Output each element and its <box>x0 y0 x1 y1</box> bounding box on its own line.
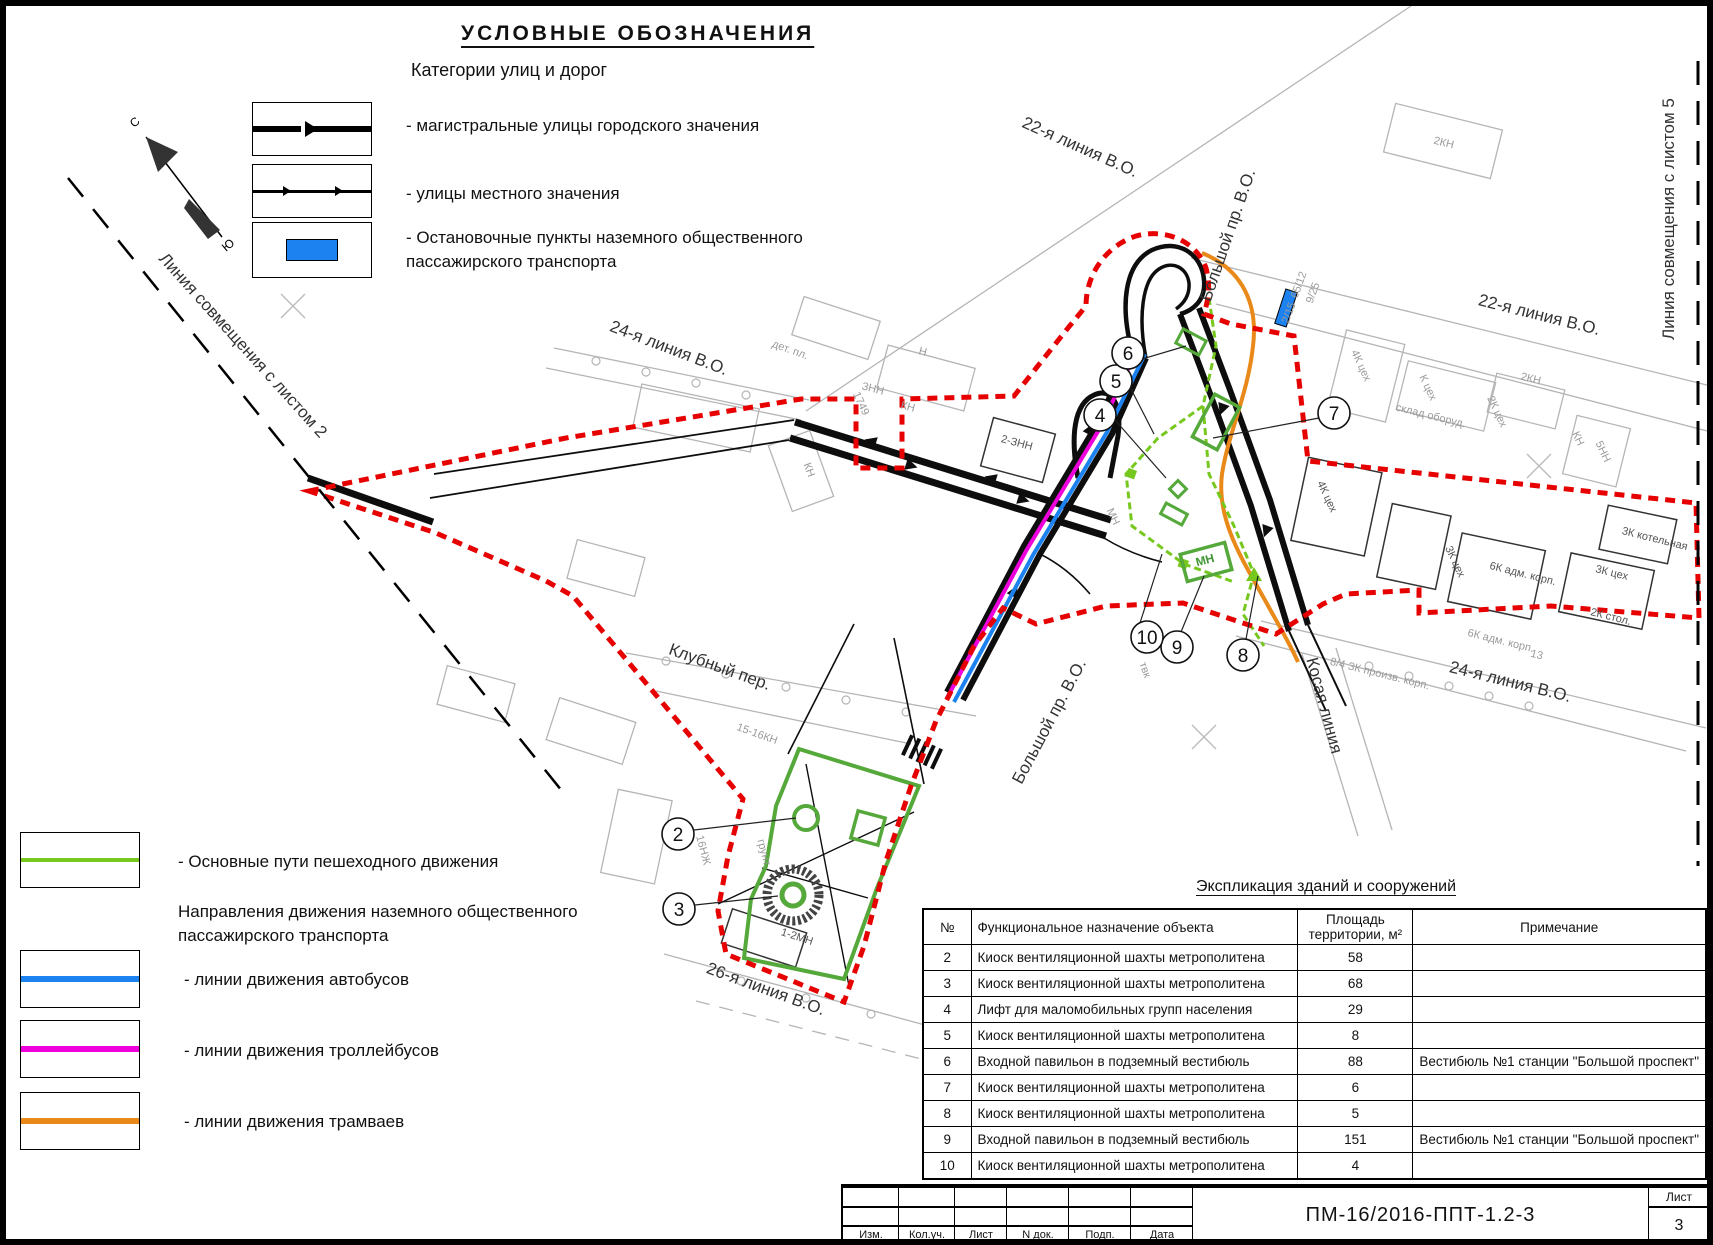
svg-text:4К цех: 4К цех <box>1314 479 1339 515</box>
table-row[interactable]: 2Киоск вентиляционной шахты метрополитен… <box>923 945 1706 971</box>
trolleybus-line-swatch <box>21 1046 139 1052</box>
col-purpose: Функциональное назначение объекта <box>971 909 1298 945</box>
cell-area: 8 <box>1298 1023 1413 1049</box>
legend-symbol-trolleybus <box>20 1020 140 1078</box>
map-marker[interactable]: 2 <box>662 818 694 850</box>
tb-label-data: Дата <box>1131 1229 1193 1241</box>
cell-purpose: Киоск вентиляционной шахты метрополитена <box>971 1075 1298 1101</box>
svg-text:КН: КН <box>1569 430 1586 448</box>
svg-text:6: 6 <box>1123 344 1134 365</box>
svg-text:МН: МН <box>1104 506 1122 527</box>
cell-note: Вестибюль №1 станции "Большой проспект" <box>1413 1049 1706 1075</box>
cell-note <box>1413 1153 1706 1180</box>
cell-note <box>1413 1075 1706 1101</box>
cell-num: 5 <box>923 1023 971 1049</box>
svg-text:Н: Н <box>917 345 928 359</box>
col-area-line2: территории, м² <box>1309 927 1403 942</box>
svg-text:10: 10 <box>1136 628 1157 649</box>
legend-item-arterial: - магистральные улицы городского значени… <box>406 114 876 138</box>
svg-text:5: 5 <box>1111 372 1122 393</box>
road-casing <box>308 246 1346 986</box>
table-header-row: № Функциональное назначение объекта Площ… <box>923 909 1706 945</box>
legend-item-pedestrian: - Основные пути пешеходного движения <box>178 850 648 874</box>
cell-purpose: Входной павильон в подземный вестибюль <box>971 1049 1298 1075</box>
svg-text:2КН: 2КН <box>1519 371 1542 388</box>
cell-note <box>1413 1101 1706 1127</box>
sheet-word: Лист <box>1648 1190 1710 1204</box>
pedestrian-line <box>21 858 139 862</box>
title-block: Изм. Кол.уч. Лист N док. Подп. Дата ПМ-1… <box>841 1184 1712 1245</box>
svg-text:твк: твк <box>1136 661 1153 680</box>
legend-symbol-tram <box>20 1092 140 1150</box>
legend-symbol-local <box>252 164 372 218</box>
svg-text:КН: КН <box>899 399 916 414</box>
map-marker[interactable]: 3 <box>663 893 695 925</box>
cell-purpose: Киоск вентиляционной шахты метрополитена <box>971 1153 1298 1180</box>
legend-symbol-bus <box>20 950 140 1008</box>
cell-purpose: Киоск вентиляционной шахты метрополитена <box>971 945 1298 971</box>
legend-item-stops: - Остановочные пункты наземного обществе… <box>406 226 836 274</box>
svg-text:5НН: 5НН <box>1593 439 1613 464</box>
map-marker[interactable]: 7 <box>1318 397 1350 429</box>
cell-area: 88 <box>1298 1049 1413 1075</box>
tb-label-izm: Изм. <box>843 1229 899 1241</box>
local-line <box>253 190 371 193</box>
svg-text:15-16КН: 15-16КН <box>735 721 779 747</box>
svg-text:24-я линия В.О.: 24-я линия В.О. <box>607 317 730 379</box>
svg-text:8: 8 <box>1238 646 1249 667</box>
arterial-arrow-icon <box>305 121 318 137</box>
north-arrow: С Ю <box>127 114 237 255</box>
drawing-sheet: С Ю 22-я линия В.О. Большой пр. В.О. 22-… <box>0 0 1713 1245</box>
tb-grid-line <box>843 1225 1193 1227</box>
svg-text:Клубный пер.: Клубный пер. <box>666 640 773 694</box>
cell-purpose: Киоск вентиляционной шахты метрополитена <box>971 971 1298 997</box>
legend-item-bus: - линии движения автобусов <box>184 968 654 992</box>
svg-text:К цех: К цех <box>1417 373 1440 403</box>
document-code: ПМ-16/2016-ППТ-1.2-3 <box>1193 1204 1648 1227</box>
svg-text:Косая линия: Косая линия <box>1302 655 1346 755</box>
cell-area: 29 <box>1298 997 1413 1023</box>
legend-symbol-arterial <box>252 102 372 156</box>
cell-area: 4 <box>1298 1153 1413 1180</box>
sheet-number: 3 <box>1648 1217 1710 1235</box>
tb-label-koluch: Кол.уч. <box>899 1229 955 1241</box>
svg-text:2: 2 <box>673 825 684 846</box>
map-marker[interactable]: 6 <box>1112 337 1144 369</box>
legend-item-local: - улицы местного значения <box>406 182 876 206</box>
table-row[interactable]: 7Киоск вентиляционной шахты метрополитен… <box>923 1075 1706 1101</box>
cell-area: 68 <box>1298 971 1413 997</box>
legend-title: УСЛОВНЫЕ ОБОЗНАЧЕНИЯ <box>461 22 814 46</box>
map-marker[interactable]: 10 <box>1131 621 1163 653</box>
cell-note <box>1413 945 1706 971</box>
cell-note <box>1413 1023 1706 1049</box>
legend-transport-header: Направления движения наземного обществен… <box>178 900 598 948</box>
svg-text:Ю: Ю <box>219 236 237 255</box>
svg-text:2-ЗНН: 2-ЗНН <box>1000 433 1034 453</box>
svg-text:2К стол.: 2К стол. <box>1589 606 1632 628</box>
svg-text:МН: МН <box>1194 551 1216 569</box>
building-label: дет. пл. Н ЗНН 1749 КН КН 2-ЗНН 65/12 9/… <box>693 135 1689 948</box>
table-row[interactable]: 9Входной павильон в подземный вестибюль1… <box>923 1127 1706 1153</box>
cell-note <box>1413 971 1706 997</box>
svg-text:Линия совмещения с листом 5: Линия совмещения с листом 5 <box>1659 98 1678 340</box>
map-marker[interactable]: 8 <box>1227 639 1259 671</box>
cell-num: 4 <box>923 997 971 1023</box>
cell-num: 10 <box>923 1153 971 1180</box>
tb-label-podp: Подп. <box>1069 1229 1131 1241</box>
cell-num: 8 <box>923 1101 971 1127</box>
svg-text:4: 4 <box>1095 406 1106 427</box>
cell-area: 5 <box>1298 1101 1413 1127</box>
tram-line-swatch <box>21 1118 139 1124</box>
svg-text:Большой пр. В.О.: Большой пр. В.О. <box>1196 167 1259 304</box>
cell-area: 58 <box>1298 945 1413 971</box>
svg-text:КН: КН <box>801 461 817 479</box>
svg-text:дет. пл.: дет. пл. <box>770 338 809 362</box>
svg-text:16НЖ: 16НЖ <box>693 834 712 866</box>
tb-sheet-divider <box>1648 1206 1710 1208</box>
col-area-line1: Площадь <box>1326 912 1385 927</box>
svg-text:3К цех: 3К цех <box>1442 544 1467 580</box>
svg-text:Большой пр. В.О.: Большой пр. В.О. <box>1008 656 1090 787</box>
svg-text:2КН: 2КН <box>1432 135 1455 152</box>
table-row[interactable]: 4Лифт для маломобильных групп населения2… <box>923 997 1706 1023</box>
svg-text:3К цех: 3К цех <box>1594 563 1630 583</box>
tb-label-list: Лист <box>955 1229 1007 1241</box>
svg-text:3: 3 <box>674 900 685 921</box>
col-note: Примечание <box>1413 909 1706 945</box>
col-area: Площадь территории, м² <box>1298 909 1413 945</box>
table-row[interactable]: 5Киоск вентиляционной шахты метрополитен… <box>923 1023 1706 1049</box>
svg-text:4К цех: 4К цех <box>1348 348 1373 384</box>
map-marker[interactable]: 5 <box>1100 365 1132 397</box>
cell-num: 7 <box>923 1075 971 1101</box>
crosswalk <box>903 735 941 768</box>
table-row[interactable]: 3Киоск вентиляционной шахты метрополитен… <box>923 971 1706 997</box>
explication-table: № Функциональное назначение объекта Площ… <box>922 908 1707 1180</box>
svg-text:склад оборуд.: склад оборуд. <box>1395 402 1467 431</box>
legend-item-trolleybus: - линии движения троллейбусов <box>184 1039 654 1063</box>
tb-grid-line <box>843 1206 1193 1208</box>
svg-text:6К адм. корп.: 6К адм. корп. <box>1466 627 1535 655</box>
cell-num: 2 <box>923 945 971 971</box>
svg-text:24-я линия В.О.: 24-я линия В.О. <box>1448 657 1574 706</box>
bus-stop-icon <box>286 239 338 261</box>
table-row[interactable]: 10Киоск вентиляционной шахты метрополите… <box>923 1153 1706 1180</box>
svg-text:7: 7 <box>1329 404 1340 425</box>
cell-note <box>1413 997 1706 1023</box>
map-marker[interactable]: 4 <box>1084 399 1116 431</box>
explication-title: Экспликация зданий и сооружений <box>1196 878 1456 896</box>
cell-purpose: Лифт для маломобильных групп населения <box>971 997 1298 1023</box>
cell-num: 6 <box>923 1049 971 1075</box>
bus-line-swatch <box>21 976 139 982</box>
legend-item-tram: - линии движения трамваев <box>184 1110 654 1134</box>
table-row[interactable]: 6Входной павильон в подземный вестибюль8… <box>923 1049 1706 1075</box>
local-arrow-icon <box>283 186 291 196</box>
cell-num: 9 <box>923 1127 971 1153</box>
cell-area: 6 <box>1298 1075 1413 1101</box>
tb-label-ndok: N док. <box>1007 1229 1069 1241</box>
col-num: № <box>923 909 971 945</box>
cell-purpose: Киоск вентиляционной шахты метрополитена <box>971 1023 1298 1049</box>
svg-text:С: С <box>127 114 143 131</box>
legend-symbol-stops <box>252 222 372 278</box>
cell-purpose: Входной павильон в подземный вестибюль <box>971 1127 1298 1153</box>
cell-area: 151 <box>1298 1127 1413 1153</box>
svg-text:3К котельная: 3К котельная <box>1621 525 1689 553</box>
svg-text:22-я линия В.О.: 22-я линия В.О. <box>1019 113 1141 181</box>
svg-text:22-я линия В.О.: 22-я линия В.О. <box>1477 290 1603 339</box>
legend-symbol-pedestrian <box>20 832 140 888</box>
svg-text:6К адм. корп.: 6К адм. корп. <box>1488 560 1557 588</box>
map-marker[interactable]: 9 <box>1161 631 1193 663</box>
local-arrow-icon <box>335 186 343 196</box>
svg-text:1749: 1749 <box>850 390 871 417</box>
svg-text:9/25: 9/25 <box>1304 281 1323 305</box>
kiosk-3-circle <box>782 884 804 906</box>
table-row[interactable]: 8Киоск вентиляционной шахты метрополитен… <box>923 1101 1706 1127</box>
arterial-gap <box>301 125 305 133</box>
cell-purpose: Киоск вентиляционной шахты метрополитена <box>971 1101 1298 1127</box>
cell-num: 3 <box>923 971 971 997</box>
svg-text:13: 13 <box>1529 648 1544 663</box>
svg-text:9: 9 <box>1172 638 1183 659</box>
cell-note: Вестибюль №1 станции "Большой проспект" <box>1413 1127 1706 1153</box>
kiosk-2-circle <box>794 806 818 830</box>
legend-subtitle: Категории улиц и дорог <box>411 60 607 81</box>
